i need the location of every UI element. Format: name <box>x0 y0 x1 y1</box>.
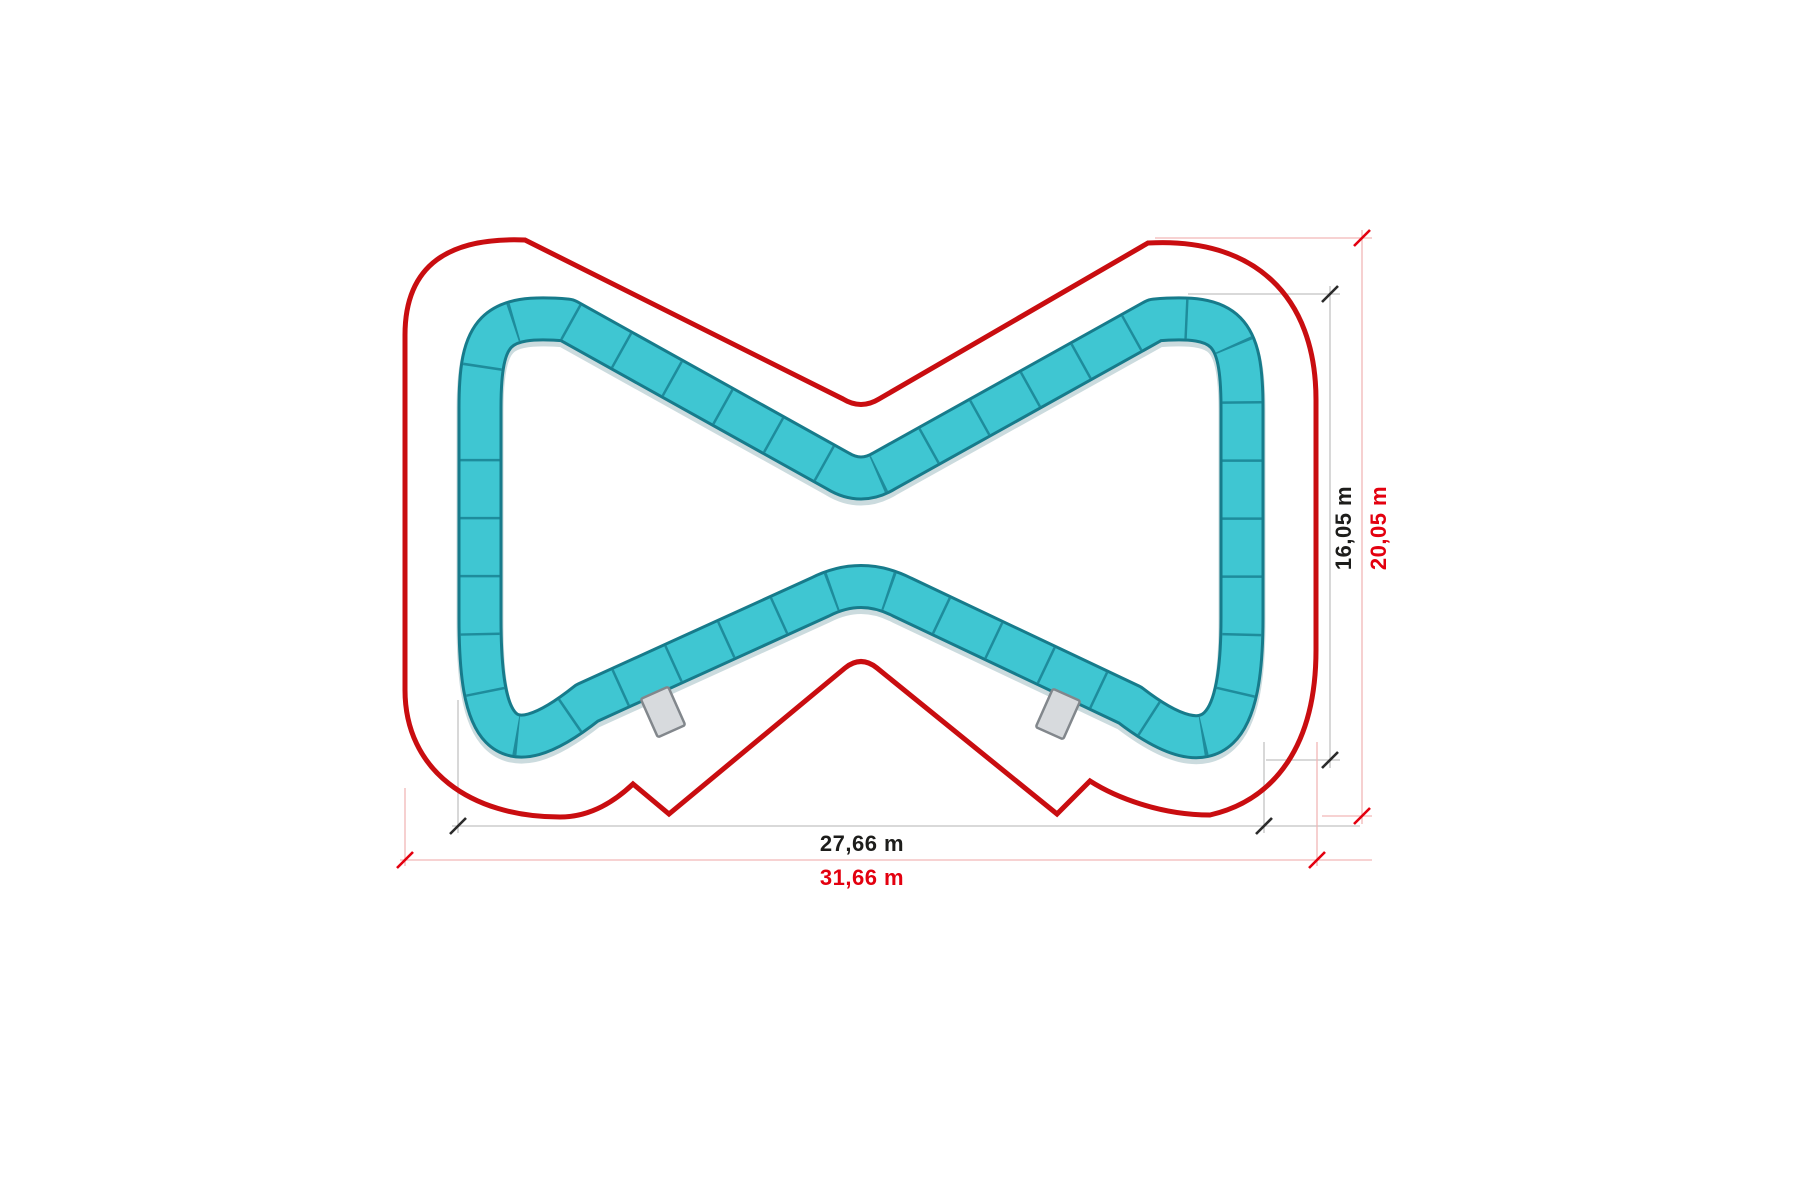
track-seams <box>480 319 1242 737</box>
pumptrack-plan-svg: 27,66 m 31,66 m 16,05 m 20,05 m <box>0 0 1800 1200</box>
dim-boundary-height-label: 20,05 m <box>1366 486 1391 570</box>
track-band <box>480 319 1242 741</box>
dim-track-height-label: 16,05 m <box>1331 486 1356 570</box>
start-mats <box>641 687 1080 740</box>
dim-track-width-label: 27,66 m <box>820 831 904 856</box>
pumptrack-plan-canvas: 27,66 m 31,66 m 16,05 m 20,05 m <box>0 0 1800 1200</box>
dim-boundary-width-label: 31,66 m <box>820 865 904 890</box>
track-surface <box>480 319 1242 737</box>
track-edge <box>480 319 1242 737</box>
